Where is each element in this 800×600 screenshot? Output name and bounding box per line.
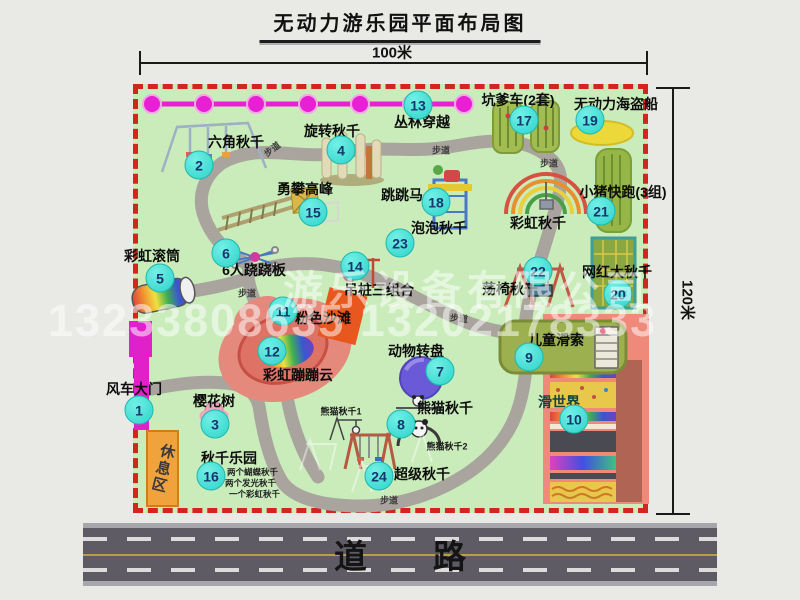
badge-19: 19 [576, 106, 605, 135]
path-label: 步道 [540, 157, 558, 170]
badge-1: 1 [125, 396, 154, 425]
badge-9: 9 [515, 343, 544, 372]
dimension-width-label: 100米 [372, 42, 412, 63]
label-panda-swing-2: 熊猫秋千2 [426, 440, 467, 453]
badge-17: 17 [510, 106, 539, 135]
badge-5: 5 [146, 264, 175, 293]
badge-2: 2 [185, 151, 214, 180]
badge-10: 10 [560, 405, 589, 434]
path-label: 步道 [432, 144, 450, 157]
label-panda-swing: 熊猫秋千 [417, 398, 473, 418]
park-layout-plan: 无动力游乐园平面布局图 100米 120米 [0, 0, 800, 600]
label-cherry-tree: 樱花树 [193, 391, 235, 411]
badge-22: 22 [524, 257, 553, 286]
label-rainbow-swing: 彩虹秋千 [510, 213, 566, 233]
badge-16: 16 [197, 462, 226, 491]
label-climbing: 勇攀高峰 [277, 179, 333, 199]
badge-8: 8 [387, 410, 416, 439]
path-label: 步道 [380, 494, 398, 507]
badge-15: 15 [299, 198, 328, 227]
path-label: 步道 [238, 287, 256, 300]
label-bubble-swing: 泡泡秋千 [411, 218, 467, 238]
label-hanging-piles: 吊桩三组合 [344, 280, 414, 300]
label-pink-beach: 粉色沙滩 [295, 308, 351, 328]
road: 道 路 [83, 523, 717, 586]
label-jumping-horse: 跳跳马 [381, 185, 423, 205]
badge-4: 4 [327, 136, 356, 165]
badge-7: 7 [426, 357, 455, 386]
dimension-tick [656, 513, 690, 515]
badge-24: 24 [365, 462, 394, 491]
badge-13: 13 [404, 91, 433, 120]
label-bounce-cloud: 彩虹蹦蹦云 [263, 365, 333, 385]
badge-20: 20 [604, 280, 633, 309]
page-title: 无动力游乐园平面布局图 [260, 7, 541, 43]
path-label: 步道 [449, 311, 468, 326]
dimension-tick [656, 87, 690, 89]
badge-14: 14 [341, 252, 370, 281]
label-rainbow-roller: 彩虹滚筒 [124, 246, 180, 266]
label-hex-swing: 六角秋千 [208, 132, 264, 152]
dimension-height-label: 120米 [678, 280, 699, 320]
badge-18: 18 [422, 188, 451, 217]
badge-3: 3 [201, 410, 230, 439]
badge-11: 11 [269, 297, 298, 326]
badge-12: 12 [258, 337, 287, 366]
badge-6: 6 [212, 239, 241, 268]
dimension-tick [139, 51, 141, 75]
badge-23: 23 [386, 229, 415, 258]
label-panda-swing-1: 熊猫秋千1 [320, 405, 361, 418]
swing-park-note-3: 一个彩虹秋千 [229, 488, 280, 500]
badge-21: 21 [587, 197, 616, 226]
rest-area-label: 休息区 [146, 441, 179, 496]
dimension-tick [646, 51, 648, 75]
label-super-swing: 超级秋千 [394, 464, 450, 484]
road-label: 道 路 [334, 530, 466, 578]
dimension-line-right [672, 88, 674, 515]
rest-area: 休息区 [146, 430, 179, 507]
